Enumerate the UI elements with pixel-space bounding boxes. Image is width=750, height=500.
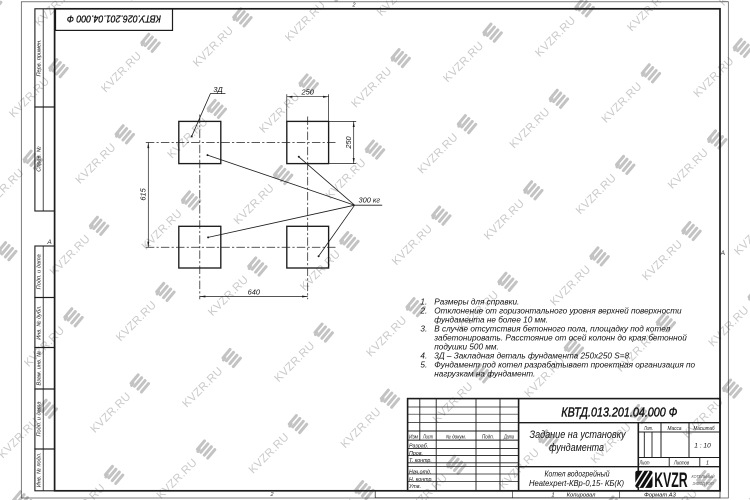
svg-text:Листов: Листов xyxy=(673,461,689,467)
svg-text:Т. контр.: Т. контр. xyxy=(409,458,432,464)
svg-text:KVZR.RU: KVZR.RU xyxy=(640,238,685,283)
svg-text:Лист: Лист xyxy=(639,461,650,467)
svg-text:2.: 2. xyxy=(419,306,427,315)
svg-text:KVZR: KVZR xyxy=(654,469,688,492)
svg-text:3Д: 3Д xyxy=(213,85,222,94)
svg-text:KVZR.RU: KVZR.RU xyxy=(625,0,670,34)
svg-text:Нач.отд.: Нач.отд. xyxy=(409,469,431,475)
svg-text:KVZR.RU: KVZR.RU xyxy=(574,172,619,217)
svg-text:3Д – Закладная деталь фундамен: 3Д – Закладная деталь фундамента 250х250… xyxy=(434,352,631,361)
svg-text:4.: 4. xyxy=(420,352,427,361)
svg-text:Дата: Дата xyxy=(503,434,514,440)
svg-text:KVZR.RU: KVZR.RU xyxy=(89,391,134,436)
svg-text:KVZR.RU: KVZR.RU xyxy=(0,258,1,303)
svg-text:KVZR.RU: KVZR.RU xyxy=(349,65,394,110)
svg-text:KVZR.RU: KVZR.RU xyxy=(482,197,527,242)
svg-text:250: 250 xyxy=(301,87,315,96)
svg-text:Инв. № подл.: Инв. № подл. xyxy=(37,453,43,488)
svg-text:KVZR.RU: KVZR.RU xyxy=(416,131,461,176)
svg-text:фундамента не более 10 мм.: фундамента не более 10 мм. xyxy=(434,315,548,324)
svg-text:Задание на установку: Задание на установку xyxy=(530,429,627,441)
svg-text:KVZR.RU: KVZR.RU xyxy=(508,106,553,151)
svg-text:KVZR.RU: KVZR.RU xyxy=(206,274,251,319)
svg-text:Фундамент под котел разрабатыв: Фундамент под котел разрабатывает проект… xyxy=(434,361,695,370)
svg-text:KVZR.RU: KVZR.RU xyxy=(283,0,328,44)
svg-text:Н. контр.: Н. контр. xyxy=(409,477,433,483)
svg-text:подушки 500 мм.: подушки 500 мм. xyxy=(434,342,499,351)
svg-text:5.: 5. xyxy=(420,361,427,370)
svg-text:KVZR.RU: KVZR.RU xyxy=(247,431,292,476)
svg-text:Пров.: Пров. xyxy=(409,451,423,457)
svg-text:Инв. № дубл.: Инв. № дубл. xyxy=(37,305,43,339)
svg-text:Подп.: Подп. xyxy=(482,434,494,440)
svg-text:250: 250 xyxy=(344,135,353,149)
svg-text:Перв. примен.: Перв. примен. xyxy=(37,39,43,76)
svg-text:Подп. и дата: Подп. и дата xyxy=(37,401,43,436)
svg-text:Масса: Масса xyxy=(668,426,682,432)
svg-text:Heatexpert-КВр-0,15- КБ(К): Heatexpert-КВр-0,15- КБ(К) xyxy=(529,478,624,488)
svg-text:KVZR.RU: KVZR.RU xyxy=(272,340,317,385)
svg-text:Разраб.: Разраб. xyxy=(409,444,428,450)
svg-text:Отклонение от горизонтального: Отклонение от горизонтального уровня вер… xyxy=(434,306,682,315)
svg-text:KVZR.RU: KVZR.RU xyxy=(114,299,159,344)
svg-text:615: 615 xyxy=(139,187,148,200)
svg-text:ЗАВОД РЭП: ЗАВОД РЭП xyxy=(693,481,714,487)
svg-text:Подп. и дата: Подп. и дата xyxy=(37,254,43,289)
svg-text:КВТД.013.201.04.000 Ф: КВТД.013.201.04.000 Ф xyxy=(561,405,677,419)
svg-text:KVZR.RU: KVZR.RU xyxy=(431,380,476,425)
svg-text:KVZR.RU: KVZR.RU xyxy=(666,147,711,192)
svg-text:Взам. инв. №: Взам. инв. № xyxy=(37,351,43,386)
svg-text:KVZR.RU: KVZR.RU xyxy=(191,25,236,70)
svg-text:640: 640 xyxy=(248,288,261,297)
svg-text:KVZR.RU: KVZR.RU xyxy=(600,80,645,125)
svg-text:KVZR.RU: KVZR.RU xyxy=(22,324,67,369)
svg-text:1.: 1. xyxy=(420,297,427,306)
svg-text:Формат А3: Формат А3 xyxy=(644,493,676,499)
svg-text:Справ. №: Справ. № xyxy=(37,146,43,171)
svg-text:300 кг: 300 кг xyxy=(359,196,381,205)
svg-text:Копировал: Копировал xyxy=(567,493,597,499)
svg-text:KVZR.RU: KVZR.RU xyxy=(364,314,409,359)
svg-text:KVZR.RU: KVZR.RU xyxy=(717,0,750,9)
svg-text:1: 1 xyxy=(706,461,709,467)
svg-text:KVZR.RU: KVZR.RU xyxy=(0,167,27,212)
svg-text:фундамента: фундамента xyxy=(549,442,604,454)
svg-text:3.: 3. xyxy=(420,324,427,333)
svg-text:KVZR.RU: KVZR.RU xyxy=(180,365,225,410)
svg-text:2: 2 xyxy=(351,3,355,9)
svg-text:КВТУ.026.201.04.000 Ф: КВТУ.026.201.04.000 Ф xyxy=(67,13,161,24)
svg-text:№ докум.: № докум. xyxy=(446,434,466,440)
svg-text:А: А xyxy=(46,239,51,246)
svg-text:Масштаб: Масштаб xyxy=(694,426,716,432)
svg-text:KVZR.RU: KVZR.RU xyxy=(732,213,750,258)
svg-text:KVZR.RU: KVZR.RU xyxy=(533,14,578,59)
svg-text:Котел водогрейный: Котел водогрейный xyxy=(545,469,610,479)
svg-text:Лист: Лист xyxy=(422,434,433,440)
svg-text:KVZR.RU: KVZR.RU xyxy=(232,182,277,227)
svg-text:Изм: Изм xyxy=(409,434,418,440)
svg-text:KVZR.RU: KVZR.RU xyxy=(155,457,200,500)
svg-text:KVZR.RU: KVZR.RU xyxy=(7,75,52,120)
svg-text:забетонировать. Расстояние от: забетонировать. Расстояние от осей колон… xyxy=(433,333,687,342)
svg-text:2: 2 xyxy=(269,492,273,498)
svg-text:KVZR.RU: KVZR.RU xyxy=(441,40,486,85)
svg-text:KVZR.RU: KVZR.RU xyxy=(257,91,302,136)
svg-text:Утв.: Утв. xyxy=(409,484,421,490)
svg-text:KVZR.RU: KVZR.RU xyxy=(99,50,144,95)
svg-text:Размеры для справки.: Размеры для справки. xyxy=(434,297,519,306)
svg-text:KVZR.RU: KVZR.RU xyxy=(140,208,185,253)
svg-text:KVZR.RU: KVZR.RU xyxy=(548,264,593,309)
svg-text:KVZR.RU: KVZR.RU xyxy=(339,406,384,451)
svg-text:В случае отсутствия бетонного: В случае отсутствия бетонного пола, площ… xyxy=(434,324,670,333)
svg-text:1: 1 xyxy=(551,493,554,499)
svg-text:А: А xyxy=(720,250,725,257)
svg-text:KVZR.RU: KVZR.RU xyxy=(390,223,435,268)
svg-text:KVZR.RU: KVZR.RU xyxy=(166,116,211,161)
svg-text:KVZR.RU: KVZR.RU xyxy=(298,248,343,293)
svg-text:нагрузкам на фундамент.: нагрузкам на фундамент. xyxy=(434,370,535,379)
svg-text:Лит.: Лит. xyxy=(643,426,653,432)
svg-text:KVZR.RU: KVZR.RU xyxy=(74,141,119,186)
svg-text:KVZR.RU: KVZR.RU xyxy=(692,55,737,100)
svg-text:1 : 10: 1 : 10 xyxy=(694,443,711,450)
